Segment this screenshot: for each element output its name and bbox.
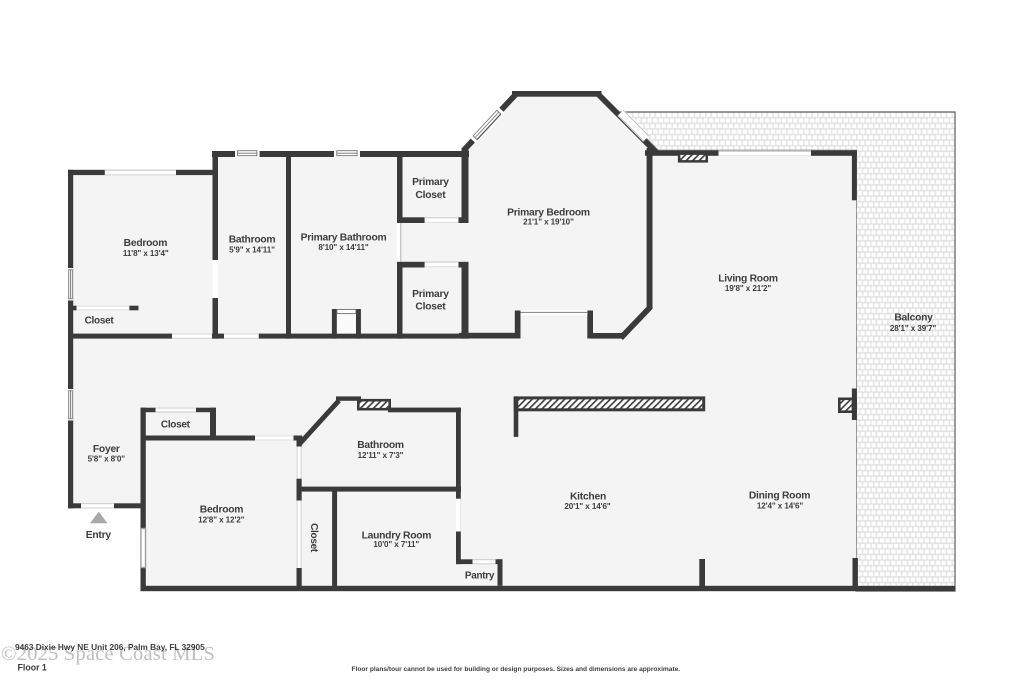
svg-text:Closet: Closet	[415, 190, 446, 201]
svg-text:21'1" x 19'10": 21'1" x 19'10"	[523, 217, 574, 226]
svg-text:5'8" x 8'0": 5'8" x 8'0"	[88, 455, 126, 464]
svg-text:12'8" x 12'2": 12'8" x 12'2"	[198, 516, 244, 525]
svg-text:Primary Bathroom: Primary Bathroom	[301, 232, 387, 243]
svg-text:Primary: Primary	[412, 177, 449, 188]
svg-text:Balcony: Balcony	[894, 312, 933, 323]
svg-text:Foyer: Foyer	[93, 444, 120, 455]
svg-text:12'11" x 7'3": 12'11" x 7'3"	[358, 451, 404, 460]
svg-text:Living Room: Living Room	[718, 274, 778, 285]
svg-text:Bedroom: Bedroom	[200, 505, 244, 516]
svg-text:Closet: Closet	[85, 315, 115, 326]
svg-text:Pantry: Pantry	[465, 571, 495, 582]
svg-text:Floor 1: Floor 1	[18, 662, 47, 672]
svg-text:20'1" x 14'6": 20'1" x 14'6"	[564, 502, 610, 511]
svg-text:10'0" x 7'11": 10'0" x 7'11"	[373, 540, 419, 549]
svg-text:Entry: Entry	[86, 530, 112, 541]
svg-text:Closet: Closet	[161, 419, 191, 430]
svg-text:28'1" x 39'7": 28'1" x 39'7"	[890, 324, 936, 333]
svg-text:8'10" x 14'11": 8'10" x 14'11"	[318, 243, 368, 252]
svg-text:9463 Dixie Hwy NE Unit 206, Pa: 9463 Dixie Hwy NE Unit 206, Palm Bay, FL…	[15, 642, 205, 652]
svg-text:Closet: Closet	[308, 523, 319, 553]
svg-text:11'8" x 13'4": 11'8" x 13'4"	[123, 249, 169, 258]
svg-text:Bedroom: Bedroom	[124, 238, 168, 249]
svg-text:Floor plans/tour cannot be use: Floor plans/tour cannot be used for buil…	[352, 666, 681, 673]
svg-text:Bathroom: Bathroom	[357, 440, 404, 451]
svg-text:5'9" x 14'11": 5'9" x 14'11"	[229, 245, 275, 254]
svg-text:Kitchen: Kitchen	[570, 491, 606, 502]
svg-text:Closet: Closet	[415, 302, 446, 313]
svg-text:12'4" x 14'6": 12'4" x 14'6"	[757, 501, 803, 510]
svg-text:Primary: Primary	[412, 289, 449, 300]
svg-text:Bathroom: Bathroom	[229, 235, 276, 246]
svg-text:19'8" x 21'2": 19'8" x 21'2"	[725, 284, 771, 293]
svg-text:Dining Room: Dining Room	[749, 490, 810, 501]
